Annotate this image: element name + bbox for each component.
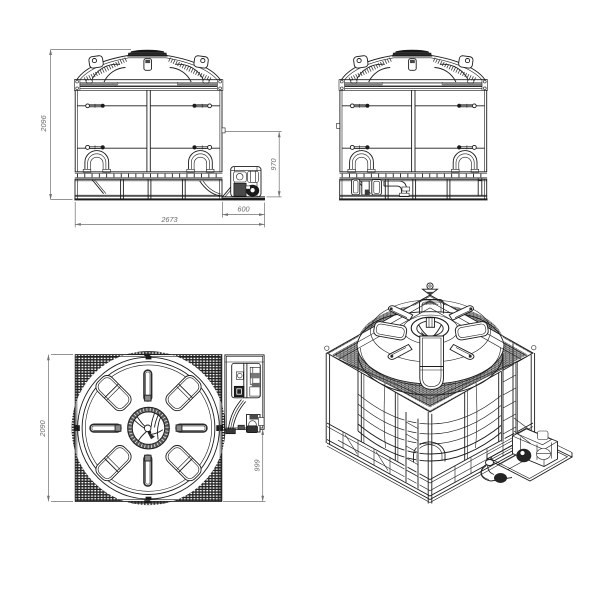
- svg-text:600: 600: [237, 205, 249, 214]
- svg-text:999: 999: [253, 459, 262, 471]
- svg-text:2096: 2096: [39, 114, 48, 132]
- svg-text:970: 970: [269, 158, 278, 170]
- svg-text:2673: 2673: [160, 215, 177, 224]
- svg-text:2090: 2090: [38, 420, 47, 437]
